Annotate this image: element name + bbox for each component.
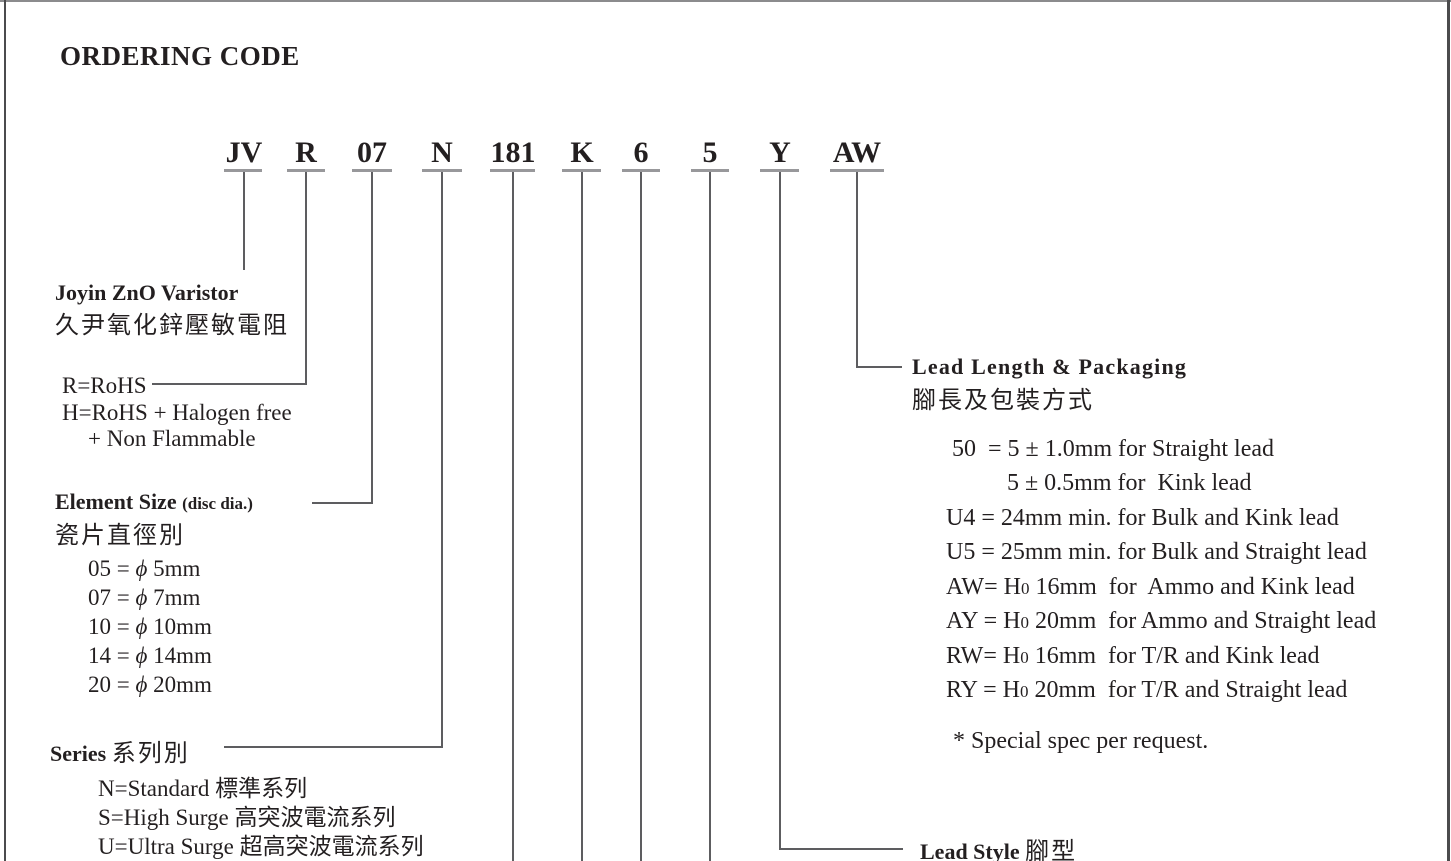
element-size-subtitle: 瓷片直徑別 [55, 515, 185, 550]
option-value: 10mm [147, 614, 212, 639]
page-title: ORDERING CODE [60, 41, 300, 72]
series-option: U=Ultra Surge 超高突波電流系列 [98, 827, 424, 861]
connector-lead-style [779, 848, 903, 850]
h-zero-subscript: 0 [1020, 648, 1029, 667]
phi-symbol: ϕ [135, 585, 147, 610]
code-part-07: 07 [357, 136, 387, 170]
code-part-181: 181 [491, 136, 536, 170]
lead-length-option: RY = H0 20mm for T/R and Straight lead [946, 677, 1347, 704]
h-zero-subscript: 0 [1020, 613, 1029, 632]
lead-length-option: U5 = 25mm min. for Bulk and Straight lea… [946, 539, 1367, 566]
option-code: 07 = [88, 585, 135, 610]
callout-line-aw [856, 172, 858, 368]
option-value: 20mm [147, 672, 212, 697]
option-text: 5 ± 0.5mm for Kink lead [1007, 470, 1251, 496]
lead-length-footnote: * Special spec per request. [953, 728, 1208, 755]
code-part-aw: AW [833, 136, 881, 170]
rohs-option: H=RoHS + Halogen free [62, 400, 292, 426]
lead-style-title: Lead Style 腳型 [920, 831, 1077, 861]
h-zero-subscript: 0 [1020, 682, 1029, 701]
phi-symbol: ϕ [135, 672, 147, 697]
lead-length-option: RW= H0 16mm for T/R and Kink lead [946, 643, 1320, 670]
connector-rohs [152, 383, 307, 385]
element-size-option: 07 = ϕ 7mm [88, 585, 200, 611]
rohs-option: R=RoHS [62, 373, 147, 399]
option-value: 14mm [147, 643, 212, 668]
page-border-top [0, 0, 1451, 2]
lead-length-title: Lead Length & Packaging [912, 354, 1187, 380]
option-text: 50 = 5 ± 1.0mm for Straight lead [952, 436, 1274, 462]
phi-symbol: ϕ [135, 556, 147, 581]
callout-line-6 [640, 172, 642, 861]
series-title-text: Series [50, 741, 106, 766]
page-border-right [1447, 0, 1450, 861]
manufacturer-subtitle: 久尹氧化鋅壓敏電阻 [55, 305, 289, 340]
option-code: 20 = [88, 672, 135, 697]
code-part-jv: JV [226, 136, 263, 170]
callout-line-07 [371, 172, 373, 504]
option-text: RW= H [946, 643, 1020, 669]
option-code: 10 = [88, 614, 135, 639]
lead-length-option: 50 = 5 ± 1.0mm for Straight lead [952, 436, 1274, 463]
option-text: U5 = 25mm min. for Bulk and Straight lea… [946, 539, 1367, 565]
callout-line-k [581, 172, 583, 861]
callout-line-5 [709, 172, 711, 861]
code-part-n: N [431, 136, 453, 170]
code-part-k: K [570, 136, 593, 170]
option-text: 16mm for T/R and Kink lead [1029, 643, 1320, 669]
lead-style-subtitle: 腳型 [1025, 839, 1077, 861]
lead-length-option: U4 = 24mm min. for Bulk and Kink lead [946, 505, 1339, 532]
element-size-option: 20 = ϕ 20mm [88, 672, 212, 698]
option-text: AW= H [946, 574, 1021, 600]
page-border-left [4, 0, 6, 861]
lead-length-option: 5 ± 0.5mm for Kink lead [1007, 470, 1251, 497]
phi-symbol: ϕ [135, 614, 147, 639]
callout-line-n [441, 172, 443, 748]
datasheet-page: ORDERING CODE JV R 07 N 181 K 6 5 Y AW J… [0, 0, 1451, 861]
rohs-option: + Non Flammable [88, 426, 256, 452]
option-code: 14 = [88, 643, 135, 668]
connector-element-size [312, 502, 373, 504]
option-text: 20mm for Ammo and Straight lead [1029, 608, 1376, 634]
manufacturer-title: Joyin ZnO Varistor [55, 280, 238, 306]
element-size-option: 14 = ϕ 14mm [88, 643, 212, 669]
element-size-title: Element Size (disc dia.) [55, 489, 253, 515]
element-size-option: 10 = ϕ 10mm [88, 614, 212, 640]
option-text: U4 = 24mm min. for Bulk and Kink lead [946, 505, 1339, 531]
callout-line-jv [243, 172, 245, 270]
option-value: 5mm [147, 556, 200, 581]
phi-symbol: ϕ [135, 643, 147, 668]
element-size-title-text: Element Size [55, 489, 177, 514]
connector-lead-length [856, 366, 902, 368]
option-text: 20mm for T/R and Straight lead [1029, 677, 1348, 703]
code-part-y: Y [769, 136, 791, 170]
lead-length-option: AW= H0 16mm for Ammo and Kink lead [946, 574, 1355, 601]
lead-style-title-text: Lead Style [920, 839, 1020, 861]
series-title: Series 系列別 [50, 733, 190, 768]
element-size-note: (disc dia.) [182, 494, 253, 513]
code-part-r: R [295, 136, 317, 170]
code-part-5: 5 [703, 136, 718, 170]
lead-length-option: AY = H0 20mm for Ammo and Straight lead [946, 608, 1376, 635]
callout-line-r [305, 172, 307, 385]
callout-line-y [779, 172, 781, 850]
callout-line-181 [512, 172, 514, 861]
option-text: AY = H [946, 608, 1020, 634]
lead-length-subtitle: 腳長及包裝方式 [912, 380, 1094, 415]
element-size-option: 05 = ϕ 5mm [88, 556, 200, 582]
option-code: 05 = [88, 556, 135, 581]
option-text: 16mm for Ammo and Kink lead [1029, 574, 1354, 600]
option-text: RY = H [946, 677, 1020, 703]
connector-series [224, 746, 443, 748]
option-value: 7mm [147, 585, 200, 610]
series-subtitle: 系列別 [112, 741, 190, 767]
code-part-6: 6 [634, 136, 649, 170]
